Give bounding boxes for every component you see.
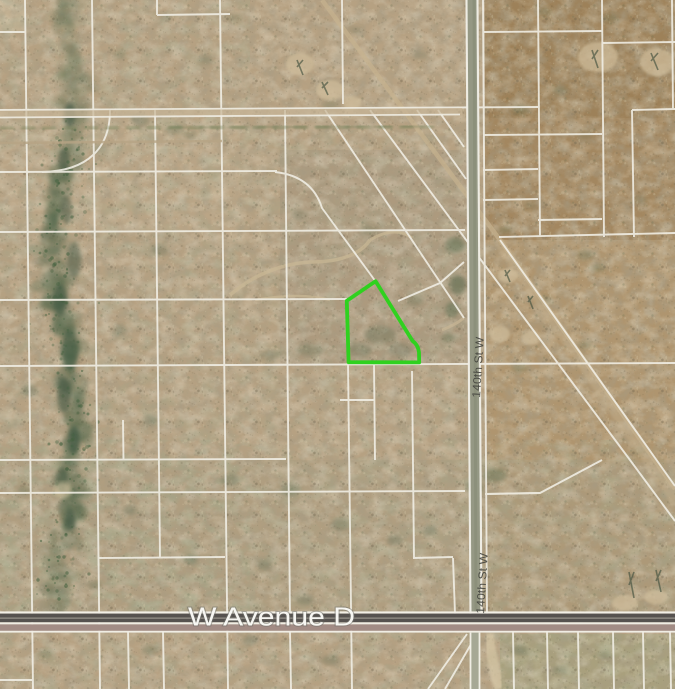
svg-text:W Avenue D: W Avenue D: [188, 602, 355, 632]
